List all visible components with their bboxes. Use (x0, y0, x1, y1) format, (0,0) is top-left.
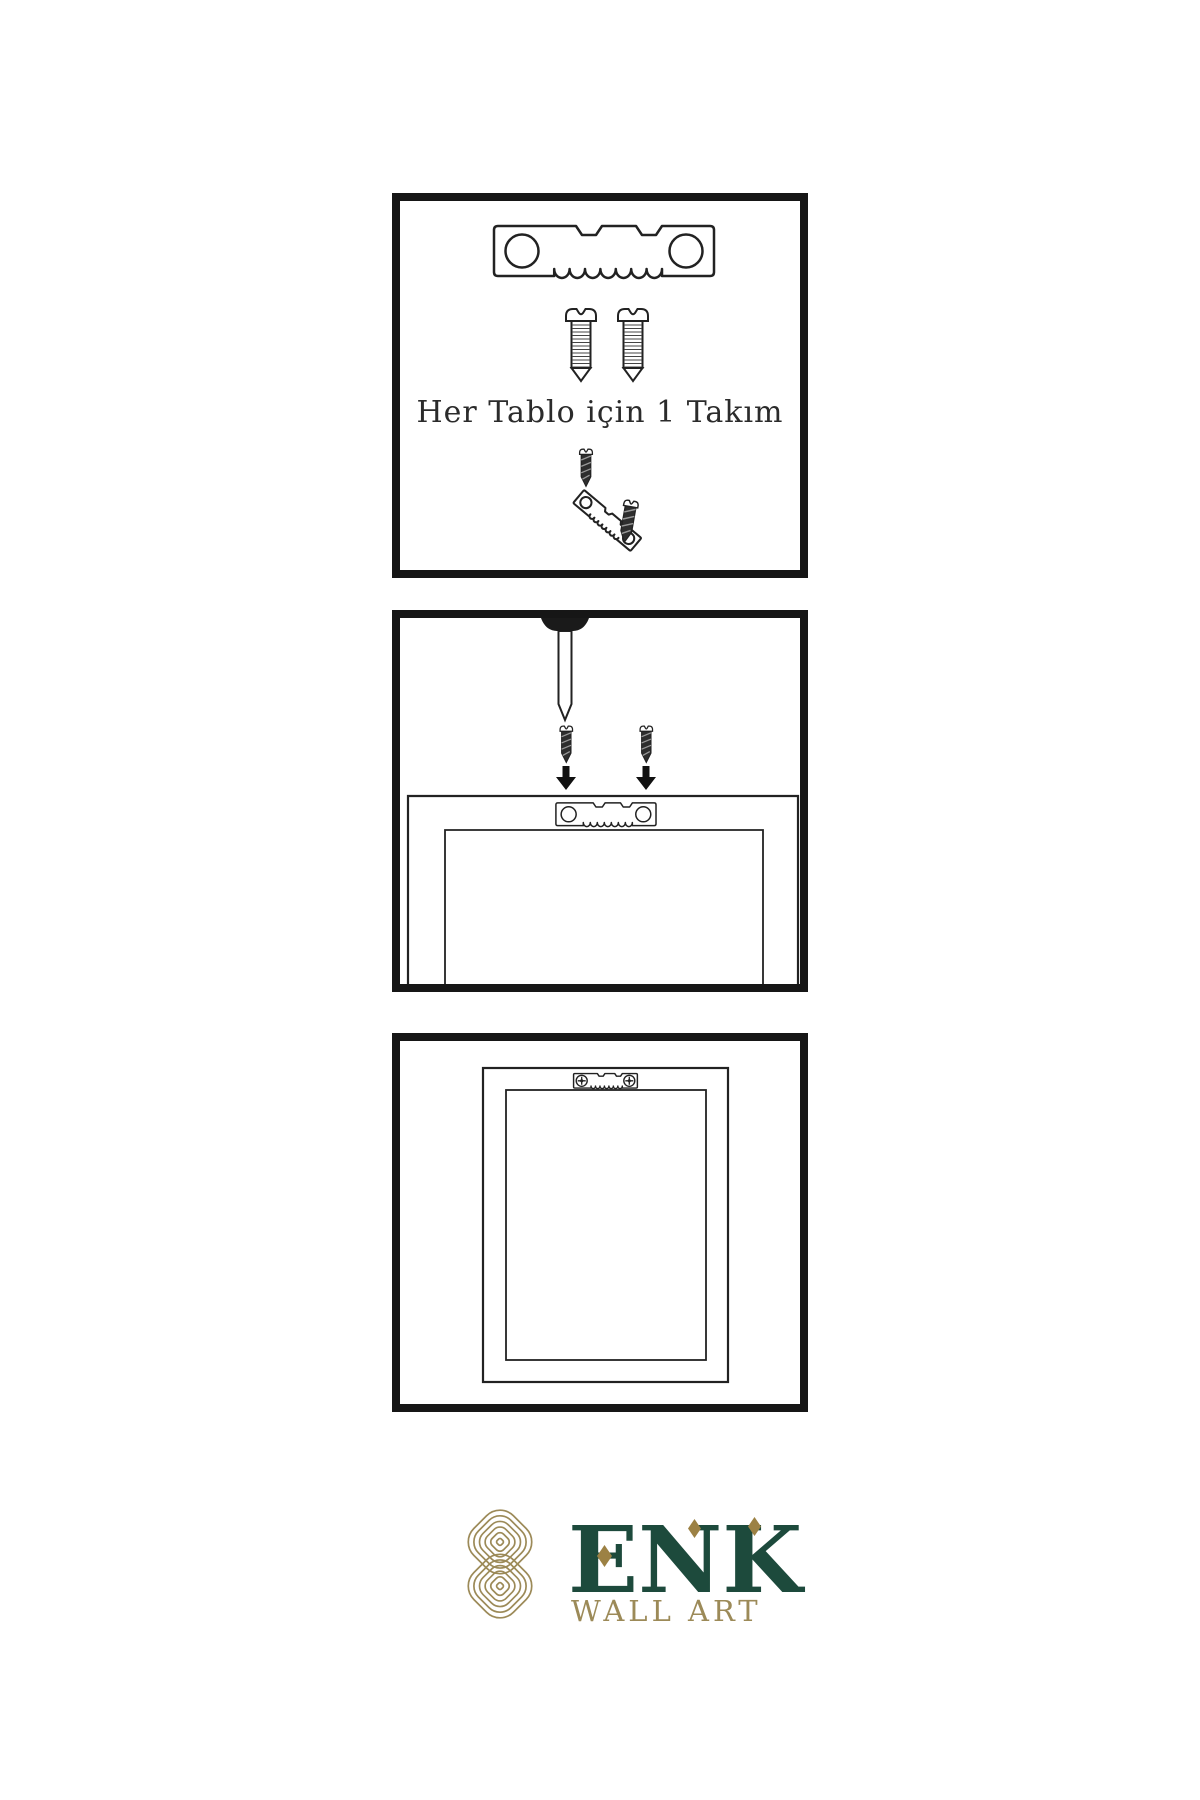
phillips-screw-icon (576, 1075, 587, 1086)
mounted-frame-illustration (400, 1041, 800, 1404)
frame-inner-edge (506, 1090, 706, 1360)
brand-subtitle: WALL ART (571, 1594, 762, 1628)
knot-icon (438, 1502, 562, 1626)
screw-dark-icon (580, 449, 593, 486)
screw-icon (618, 309, 648, 381)
brand-logo: ENK WALL ART (438, 1500, 808, 1650)
frame-inner-edge (445, 830, 763, 984)
screw-dark-icon (560, 726, 572, 762)
nail-icon (541, 618, 589, 720)
kit-caption: Her Tablo için 1 Takım (400, 395, 800, 430)
phillips-screw-icon (624, 1075, 635, 1086)
screw-dark-icon (640, 726, 652, 762)
down-arrow-icon (636, 766, 656, 790)
sawtooth-hanger-icon (556, 803, 656, 827)
wall-mounting-illustration (400, 618, 800, 984)
panel-wall-mounting (392, 610, 808, 992)
panel-mounted-frame (392, 1033, 808, 1412)
down-arrow-icon (556, 766, 576, 790)
screw-icon (566, 309, 596, 381)
product-instruction-sheet: { "page": { "background": "#ffffff", "in… (0, 0, 1200, 1800)
sawtooth-hanger-icon (494, 226, 714, 278)
panel-hardware-kit: Her Tablo için 1 Takım (392, 193, 808, 578)
hardware-kit-illustration (400, 201, 800, 570)
